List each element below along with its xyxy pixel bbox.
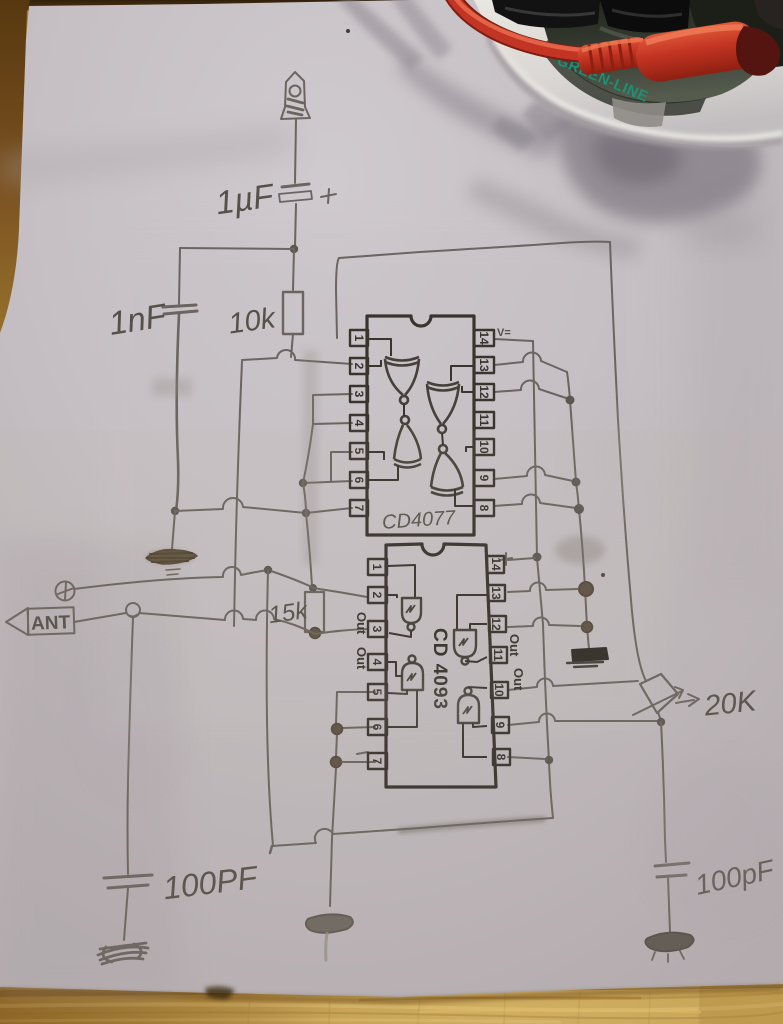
svg-text:1: 1 xyxy=(352,335,366,342)
svg-text:10k: 10k xyxy=(226,302,278,340)
svg-text:4: 4 xyxy=(352,420,366,427)
svg-text:2: 2 xyxy=(352,363,366,370)
svg-text:11: 11 xyxy=(477,414,491,427)
svg-text:14: 14 xyxy=(477,331,491,345)
svg-text:12: 12 xyxy=(477,385,491,399)
svg-text:V=: V= xyxy=(497,327,511,339)
svg-text:13: 13 xyxy=(477,358,491,372)
svg-text:3: 3 xyxy=(352,391,366,398)
